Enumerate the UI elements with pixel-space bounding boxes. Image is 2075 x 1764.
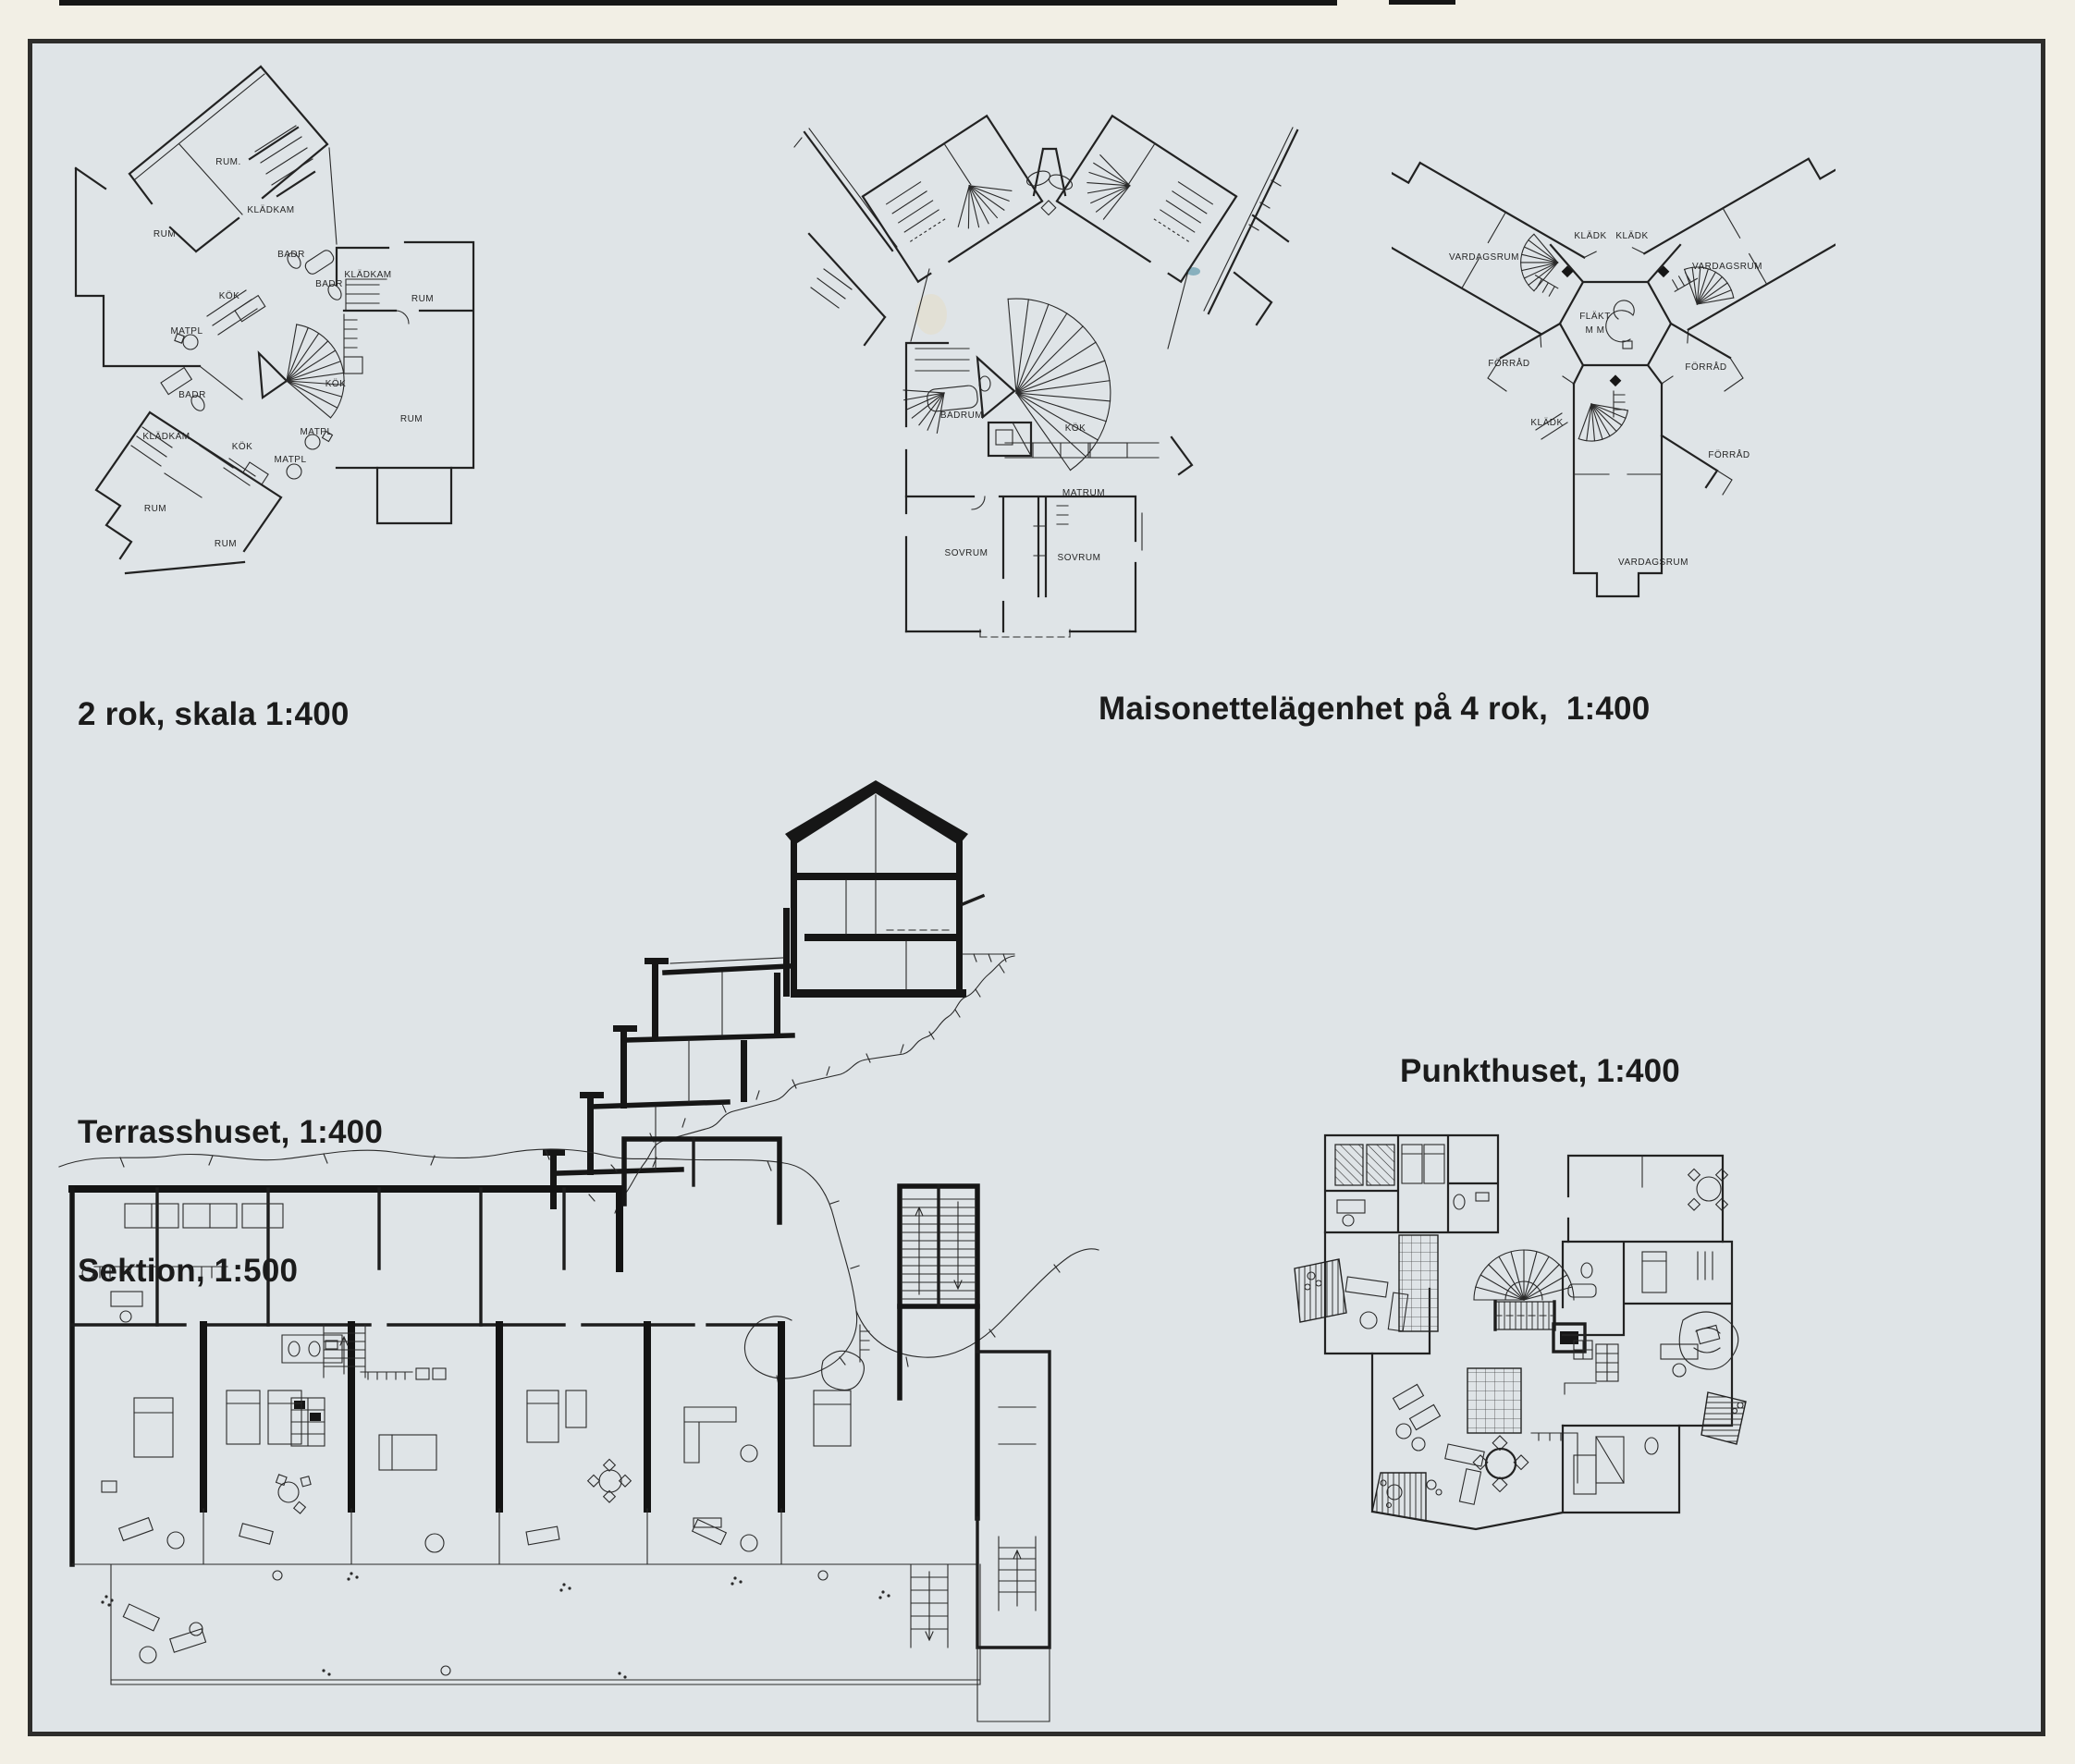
core <box>1551 245 1680 386</box>
caption-maisonette: Maisonettelägenhet på 4 rok, 1:400 <box>1099 686 1650 732</box>
room-label: KÖK <box>1065 423 1087 434</box>
room-label: KLÄDKAM <box>247 204 294 215</box>
room-label: KLÄDK <box>1574 230 1606 241</box>
room-label: MATPL <box>170 326 203 337</box>
room-labels: RUM. RUM KLÄDKAM BADR BADR KLÄDKAM RUM K… <box>142 157 434 549</box>
room-left <box>76 168 242 399</box>
room-label: BADR <box>178 390 206 400</box>
room-label: RUM <box>144 504 166 514</box>
room-label: KÖK <box>325 378 347 389</box>
room-label: VARDAGSRUM <box>1692 262 1762 272</box>
stair-tower <box>900 1186 977 1518</box>
room-label: KÖK <box>219 290 240 301</box>
terrace-garden <box>101 1518 948 1679</box>
room-label: MATPL <box>300 427 332 437</box>
right-top-room <box>1568 1156 1727 1242</box>
room-label: FÖRRÅD <box>1685 361 1726 373</box>
wing-upper-right <box>1057 116 1236 281</box>
room-label: KLÄDK <box>1530 417 1563 428</box>
room-label: MATRUM <box>1062 488 1105 498</box>
upper-left-block <box>1325 1135 1498 1232</box>
room-labels: BADRUM KÖK MATRUM SOVRUM SOVRUM <box>940 410 1105 563</box>
room-label: M M <box>1586 325 1605 336</box>
long-wall-left <box>794 129 897 345</box>
room-label: SOVRUM <box>1058 553 1101 563</box>
room-label: RUM. <box>215 157 241 167</box>
lower-rooms <box>906 269 1188 637</box>
caption-terrasshuset: Terrasshuset, 1:400 Sektion, 1:500 <box>78 1017 383 1387</box>
wing-upper-right <box>1632 138 1836 343</box>
room-label: FLÄKT <box>1579 311 1611 322</box>
figure-y-plan: VARDAGSRUM KLÄDK KLÄDK VARDAGSRUM FLÄKT … <box>1392 69 1836 643</box>
room-label: RUM <box>411 294 434 304</box>
caption-terrasshuset-line2: Sektion, 1:500 <box>78 1248 383 1294</box>
room-label: KLÄDKAM <box>142 431 190 442</box>
room-label: FÖRRÅD <box>1488 357 1529 369</box>
caption-terrasshuset-line1: Terrasshuset, 1:400 <box>78 1109 383 1156</box>
house-top <box>783 780 1014 998</box>
scanned-page: RUM. RUM KLÄDKAM BADR BADR KLÄDKAM RUM K… <box>0 0 2075 1764</box>
scan-edge-bar-2 <box>1389 0 1455 5</box>
bottom-left-balcony <box>1372 1473 1426 1521</box>
wing-upper-left <box>1392 141 1596 347</box>
figure-punkthuset-plan <box>1291 1122 1767 1571</box>
room-label: VARDAGSRUM <box>1618 557 1688 568</box>
central-stair <box>1474 1250 1585 1352</box>
room-label: FÖRRÅD <box>1708 448 1750 460</box>
room-label: RUM <box>215 539 237 549</box>
entry-cluster <box>1025 149 1074 214</box>
right-wing <box>977 1352 1050 1721</box>
wing-upper-left <box>863 116 1042 281</box>
left-balcony <box>1295 1259 1346 1322</box>
room-label: BADR <box>315 279 343 289</box>
room-label: KLÄDK <box>1615 230 1648 241</box>
scan-edge-bar <box>59 0 1337 6</box>
room-label: BADRUM <box>940 410 983 421</box>
room-label: SOVRUM <box>945 548 988 558</box>
stair-fan-center <box>259 325 344 418</box>
room-label: VARDAGSRUM <box>1449 252 1519 263</box>
room-label: KLÄDKAM <box>344 269 391 280</box>
room-labels: VARDAGSRUM KLÄDK KLÄDK VARDAGSRUM FLÄKT … <box>1449 230 1762 568</box>
room-label: RUM <box>400 414 423 424</box>
kitchen <box>1005 437 1192 474</box>
right-balcony <box>1701 1392 1746 1444</box>
room-label: KÖK <box>232 441 253 452</box>
caption-punkthuset: Punkthuset, 1:400 <box>1400 1048 1680 1095</box>
room-label: BADR <box>277 250 305 260</box>
caption-two-rok: 2 rok, skala 1:400 <box>78 692 350 738</box>
kitchen-core <box>1467 1341 1618 1433</box>
figure-maisonette-plan: BADRUM KÖK MATRUM SOVRUM SOVRUM <box>754 79 1345 670</box>
room-label: RUM <box>153 229 176 239</box>
figure-two-rok-plan: RUM. RUM KLÄDKAM BADR BADR KLÄDKAM RUM K… <box>61 59 496 614</box>
room-label: MATPL <box>274 455 306 465</box>
